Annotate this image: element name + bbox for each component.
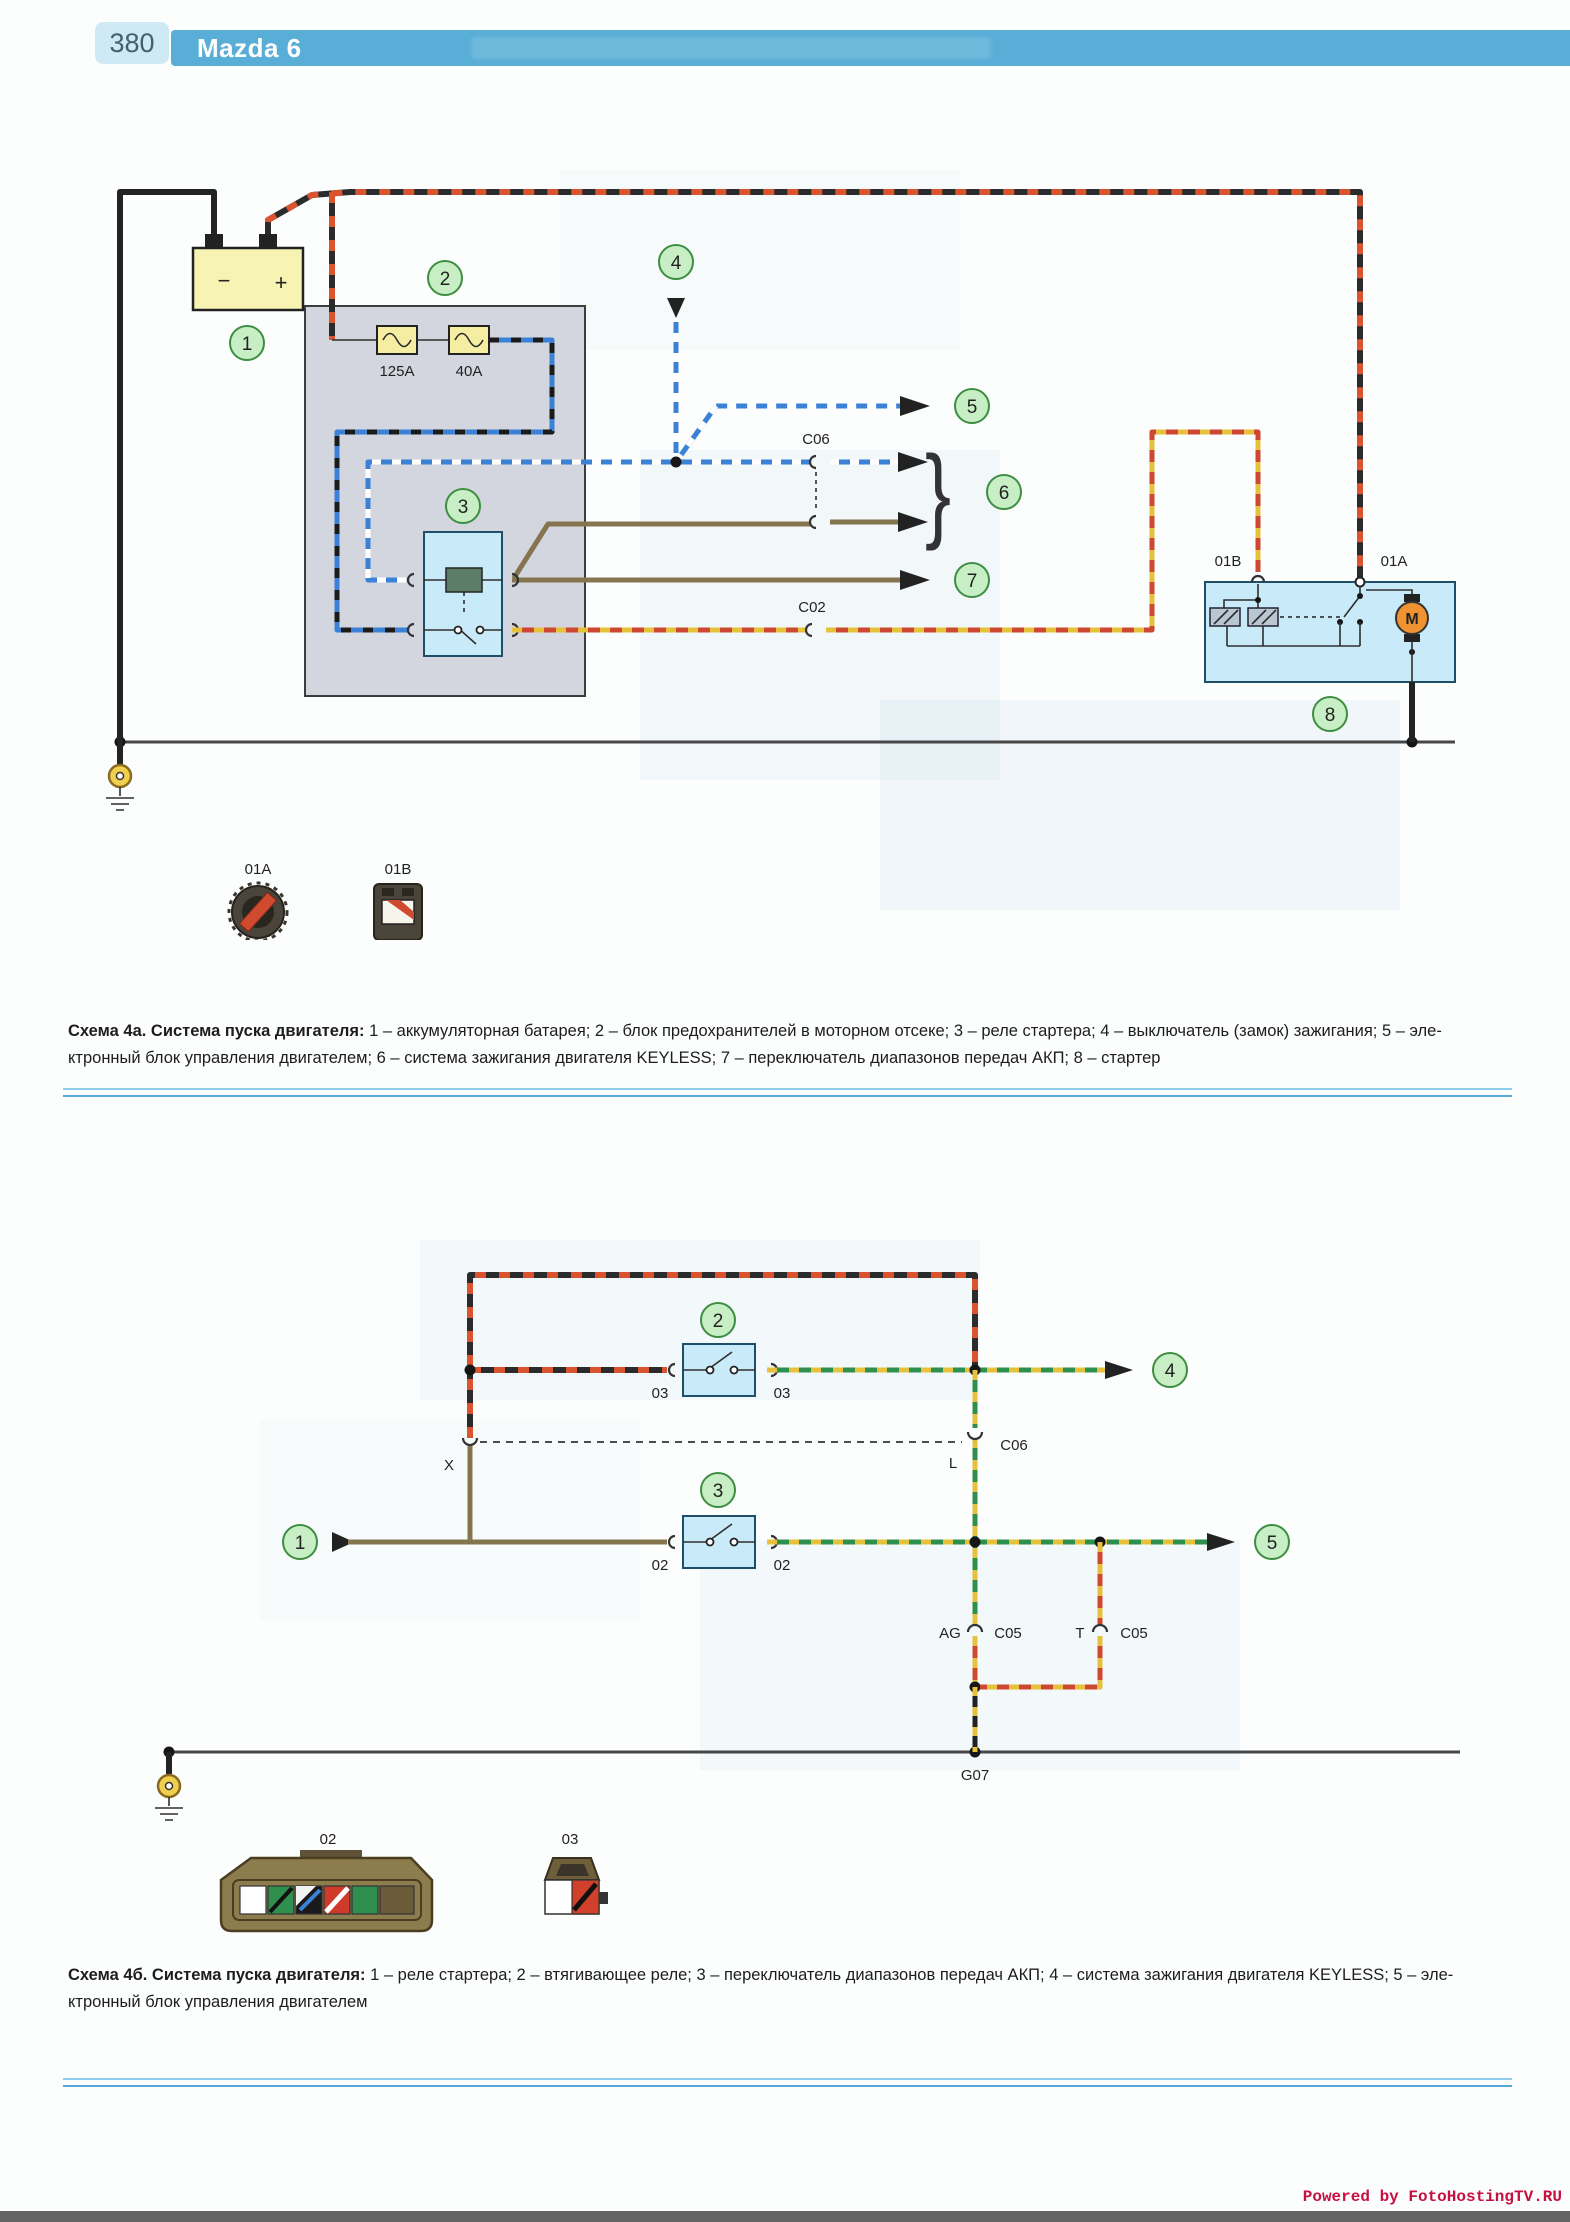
svg-text:1: 1 (295, 1533, 306, 1554)
battery-plus-label: + (275, 270, 288, 295)
svg-text:5: 5 (1267, 1533, 1278, 1554)
svg-text:5: 5 (967, 397, 978, 418)
svg-text:01A: 01A (245, 861, 272, 878)
connector-c05b-label: C05 (1120, 1625, 1148, 1642)
diagram-b: G07 X 03 03 (0, 1180, 1570, 2010)
legend-connector-01b: 01B (374, 861, 422, 940)
callout-3: 3 (701, 1473, 735, 1507)
caption-4a-title: Схема 4а. Система пуска двигателя: (68, 1022, 365, 1040)
svg-text:03: 03 (562, 1831, 579, 1848)
arrow-to-item5 (900, 396, 930, 416)
connector-c06-label: C06 (802, 431, 830, 448)
legend-connector-03: 03 (545, 1831, 608, 1914)
callout-2: 2 (428, 261, 462, 295)
battery-minus-label: − (218, 268, 231, 293)
scan-haze (700, 1540, 1240, 1770)
header-bar: Mazda 6 (171, 30, 1570, 66)
connector-c05a-label: C05 (994, 1625, 1022, 1642)
scan-haze (560, 170, 960, 350)
svg-text:4: 4 (671, 253, 682, 274)
svg-text:3: 3 (713, 1481, 724, 1502)
ground-g07-label: G07 (961, 1767, 989, 1784)
callout-5: 5 (955, 389, 989, 423)
fuse-40a-label: 40A (456, 363, 483, 380)
sw2-in-label: 03 (652, 1385, 669, 1402)
connector-c06-label: C06 (1000, 1437, 1028, 1454)
fuse-125a-label: 125A (379, 363, 414, 380)
svg-text:1: 1 (242, 334, 253, 355)
hosting-credit: Powered by FotoHostingTV.RU (1303, 2188, 1562, 2206)
motor-label: M (1405, 611, 1418, 628)
svg-text:3: 3 (458, 497, 469, 518)
arrow-to-item4 (1105, 1361, 1133, 1379)
sw3-in-label: 02 (652, 1557, 669, 1574)
callout-3: 3 (446, 489, 480, 523)
svg-text:8: 8 (1325, 705, 1336, 726)
watermark-ghost (471, 37, 991, 59)
svg-text:4: 4 (1165, 1361, 1176, 1382)
callout-1: 1 (283, 1525, 317, 1559)
page-number: 380 (95, 22, 169, 64)
item6-brace: } (925, 433, 951, 551)
starter-unit: 01B 01A M (1205, 553, 1455, 682)
callout-8: 8 (1313, 697, 1347, 731)
caption-4b-title: Схема 4б. Система пуска двигателя: (68, 1966, 366, 1984)
caption-schema-4a: Схема 4а. Система пуска двигателя: 1 – а… (68, 1018, 1498, 1072)
connector-l-label: L (949, 1455, 957, 1472)
svg-text:7: 7 (967, 571, 978, 592)
manual-page: 380 Mazda 6 − (0, 0, 1570, 2222)
legend-connector-01a: 01A (229, 861, 287, 940)
caption-schema-4b: Схема 4б. Система пуска двигателя: 1 – р… (68, 1962, 1498, 2016)
svg-text:01B: 01B (385, 861, 412, 878)
section-rule (63, 1088, 1512, 1097)
starter-relay (408, 532, 518, 656)
caption-4b-line1: 1 – реле стартера; 2 – втягивающее реле;… (370, 1966, 1453, 1984)
svg-text:02: 02 (320, 1831, 337, 1848)
connector-c02-label: C02 (798, 599, 826, 616)
section-rule (63, 2078, 1512, 2087)
svg-text:2: 2 (713, 1311, 724, 1332)
caption-4a-line1: 1 – аккумуляторная батарея; 2 – блок пре… (369, 1022, 1442, 1040)
sw3-out-label: 02 (774, 1557, 791, 1574)
connector-t-label: T (1075, 1625, 1084, 1642)
svg-text:6: 6 (999, 483, 1010, 504)
scan-edge-strip (0, 2211, 1570, 2222)
svg-text:2: 2 (440, 269, 451, 290)
connector-x-label: X (444, 1457, 454, 1474)
page-title: Mazda 6 (197, 33, 302, 64)
callout-1: 1 (230, 326, 264, 360)
callout-6: 6 (987, 475, 1021, 509)
starter-01b-label: 01B (1215, 553, 1242, 570)
scan-haze (260, 1420, 640, 1620)
callout-5: 5 (1255, 1525, 1289, 1559)
battery: − + (193, 234, 303, 310)
callout-7: 7 (955, 563, 989, 597)
diagram-a: − + 125A 40A (0, 100, 1570, 940)
connector-c06: L C06 (949, 1432, 1028, 1472)
callout-4: 4 (659, 245, 693, 279)
caption-4b-line2: ктронный блок управления двигателем (68, 1993, 368, 2011)
caption-4a-line2: ктронный блок управления двигателем; 6 –… (68, 1049, 1160, 1067)
legend-connector-02: 02 (221, 1831, 432, 1931)
callout-2: 2 (701, 1303, 735, 1337)
ground-symbol (106, 742, 134, 810)
ground-symbol (155, 1752, 183, 1820)
scan-haze (880, 700, 1400, 910)
connector-ag-label: AG (939, 1625, 961, 1642)
starter-01a-label: 01A (1381, 553, 1408, 570)
sw2-out-label: 03 (774, 1385, 791, 1402)
callout-4: 4 (1153, 1353, 1187, 1387)
